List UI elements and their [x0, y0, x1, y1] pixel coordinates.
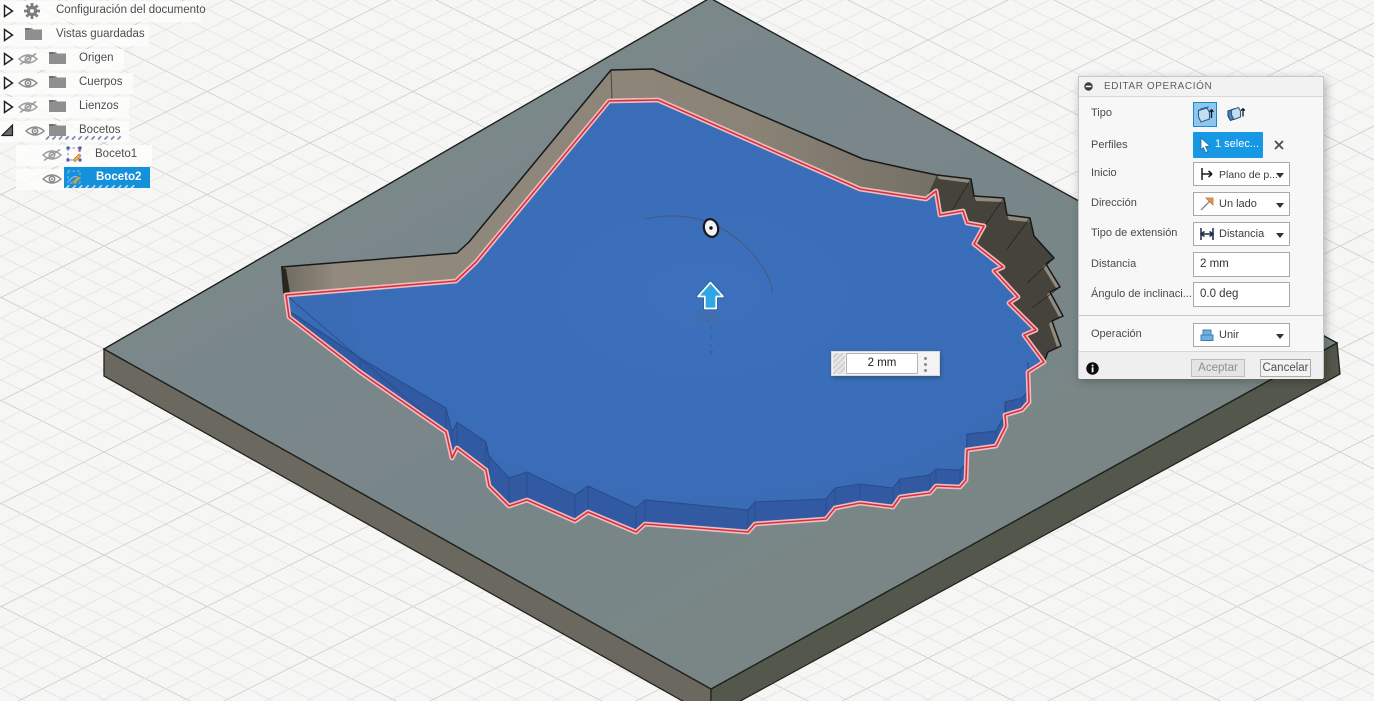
- svg-text:2.00: 2.00: [695, 311, 719, 325]
